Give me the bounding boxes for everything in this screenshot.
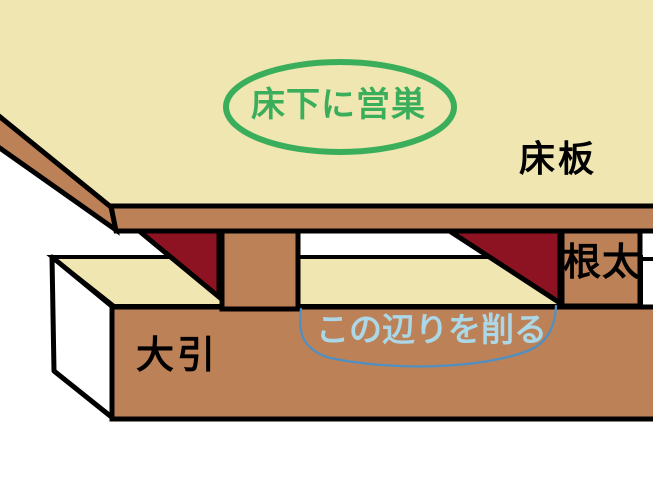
nest-callout-label: 床下に営巣 (251, 88, 426, 122)
sleeper-label: 大引 (136, 336, 218, 374)
diagram-drawing (0, 0, 653, 490)
floor-construction-diagram: 床下に営巣 床板 根太 大引 この辺りを削る (0, 0, 653, 490)
floorboard-label: 床板 (519, 141, 597, 177)
shave-area-label: この辺りを削る (316, 313, 547, 346)
joist-post-center (222, 230, 298, 309)
joist-label: 根太 (563, 243, 641, 281)
floorboard-front-edge (111, 206, 653, 231)
